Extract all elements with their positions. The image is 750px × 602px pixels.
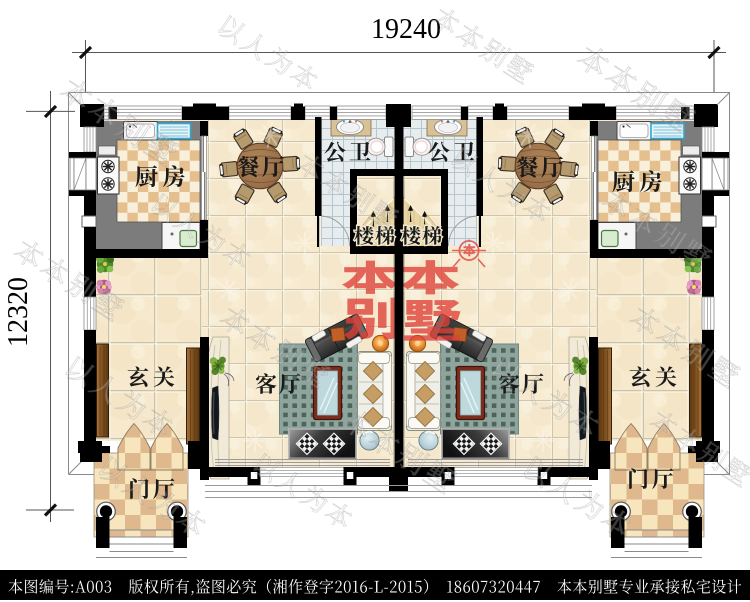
svg-text:19240: 19240: [371, 14, 441, 45]
svg-text:12320: 12320: [3, 277, 34, 347]
